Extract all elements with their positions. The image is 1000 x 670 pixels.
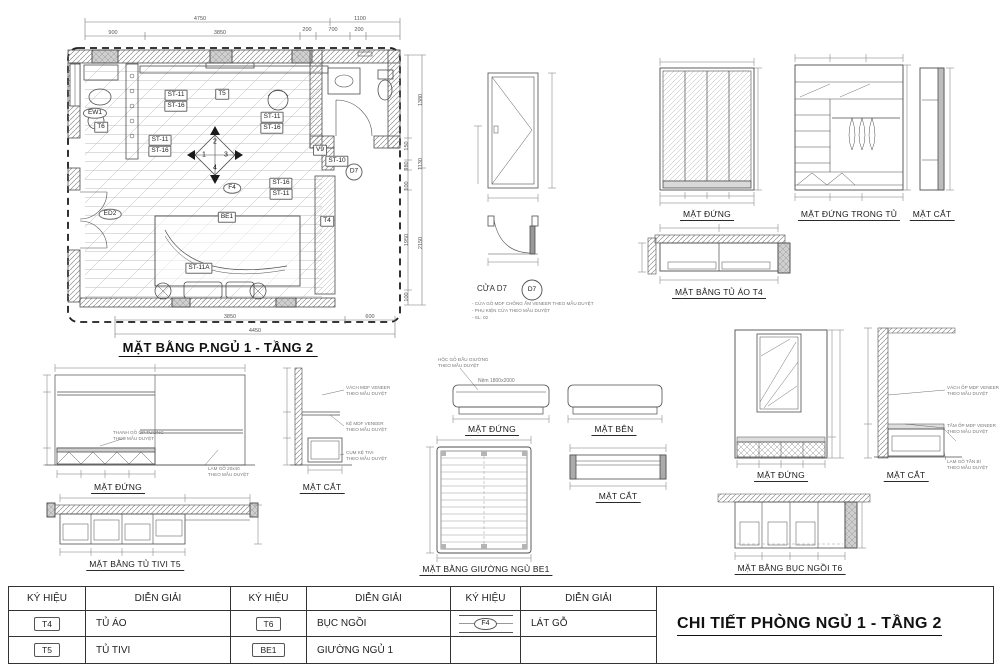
legend-desc-be1: GIƯỜNG NGỦ 1 (307, 637, 451, 663)
legend-desc-f4: LÁT GỖ (521, 611, 657, 637)
bench-sec-note-3: LAM GỖ TẦN BÌ THEO MẪU DUYỆT (947, 459, 988, 471)
dim-100a: 100 (404, 181, 410, 190)
legend-sym-t6: T6 (231, 611, 307, 637)
wardrobe-inside-title: MẶT ĐỨNG TRONG TỦ (798, 209, 900, 221)
symbol-be1: BE1 (252, 643, 284, 657)
plan-title: MẶT BẰNG P.NGỦ 1 - TẦNG 2 (119, 340, 318, 357)
compass-1: 1 (202, 152, 206, 159)
bench-sec-note-2a: TẤM ỐP MDF VENEER (947, 423, 996, 428)
bed-front-title: MẶT ĐỨNG (465, 424, 519, 436)
tag-st16-left: ST-16 (148, 146, 171, 157)
dim-1130: 1130 (418, 158, 424, 170)
tag-d7-plan: D7 (346, 164, 363, 181)
symbol-t4: T4 (34, 617, 60, 631)
dim-200b: 200 (354, 27, 363, 33)
tag-st11a: ST-11A (185, 263, 212, 274)
wardrobe-front-title: MẶT ĐỨNG (680, 209, 734, 221)
dim-600: 600 (365, 314, 374, 320)
legend-desc-t4: TỦ ÁO (86, 611, 231, 637)
legend-sym-f4: F4 (451, 611, 521, 637)
bench-sec-note-2b: THEO MẪU DUYỆT (947, 429, 988, 434)
legend-desc-t5: TỦ TIVI (86, 637, 231, 663)
tv-sec-note-3a: CỤM KỆ TIVI (346, 450, 373, 455)
sheet-title: CHI TIẾT PHÒNG NGỦ 1 - TẦNG 2 (677, 615, 942, 636)
tag-st11-top: ST-11 (165, 90, 188, 101)
bench-plan-title: MẶT BẰNG BỤC NGỒI T6 (735, 563, 846, 575)
door-note-3: - SL: 02 (472, 315, 488, 321)
tv-sec-note-3b: THEO MẪU DUYỆT (346, 456, 387, 461)
compass-2: 2 (213, 139, 217, 146)
tag-ew1: EW1 (83, 108, 107, 119)
tv-note-wall-1: THANH GỖ ỐP TƯỜNG (113, 430, 164, 435)
dim-980: 980 (404, 161, 410, 170)
bench-sec-note-1: VÁCH ỐP MDF VENEER THEO MẪU DUYỆT (947, 385, 999, 397)
legend-desc-t6: BỤC NGỒI (307, 611, 451, 637)
floor-plan-drawing (68, 18, 426, 338)
tv-note-wall: THANH GỖ ỐP TƯỜNG THEO MẪU DUYỆT (113, 430, 164, 442)
door-detail-drawing (474, 73, 556, 300)
tag-v9: V9 (313, 145, 327, 156)
tag-f4: F4 (223, 183, 241, 194)
bed-side-title: MẶT BÊN (591, 424, 636, 436)
wardrobe-section-title: MẶT CẮT (910, 209, 955, 221)
bench-sec-note-3b: THEO MẪU DUYỆT (947, 465, 988, 470)
dim-1950: 1950 (404, 234, 410, 246)
tv-plan-title: MẶT BẰNG TỦ TIVI T5 (86, 559, 184, 571)
tag-t4-plan: T4 (320, 216, 334, 227)
tag-st11-left: ST-11 (149, 135, 172, 146)
tag-be1: BE1 (218, 212, 236, 223)
wardrobe-drawings (638, 54, 954, 284)
tv-note-lam: LAM GỖ 20x40 THEO MẪU DUYỆT (208, 466, 249, 478)
legend-header-sym-1: KÝ HIỆU (9, 587, 86, 611)
tv-sec-note-2a: KỆ MDF VENEER (346, 421, 384, 426)
dim-4450: 4450 (249, 328, 261, 334)
tv-unit-drawings (43, 364, 352, 556)
tag-st16-top: ST-16 (164, 101, 187, 112)
tag-st16-mid: ST-16 (269, 178, 292, 189)
bench-sec-note-3a: LAM GỖ TẦN BÌ (947, 459, 981, 464)
legend-header-desc-1: DIỄN GIẢI (86, 587, 231, 611)
dim-2150: 2150 (418, 237, 424, 249)
tv-note-lam-2: THEO MẪU DUYỆT (208, 472, 249, 477)
tv-sec-note-3: CỤM KỆ TIVI THEO MẪU DUYỆT (346, 450, 387, 462)
legend-table: KÝ HIỆU DIỄN GIẢI KÝ HIỆU DIỄN GIẢI KÝ H… (8, 586, 994, 664)
bench-sec-note-1b: THEO MẪU DUYỆT (947, 391, 988, 396)
bench-sec-note-1a: VÁCH ỐP MDF VENEER (947, 385, 999, 390)
legend-sym-empty (451, 637, 521, 663)
dim-100b: 100 (404, 292, 410, 301)
floor-finish-symbol: F4 (459, 615, 513, 633)
tv-note-lam-1: LAM GỖ 20x40 (208, 466, 240, 471)
symbol-t5: T5 (34, 643, 60, 657)
bench-drawings (718, 328, 962, 560)
tv-section-title: MẶT CẮT (300, 482, 345, 494)
tv-sec-note-1: VÁCH MDF VENEER THEO MẪU DUYỆT (346, 385, 390, 397)
legend-header-sym-3: KÝ HIỆU (451, 587, 521, 611)
bench-front-title: MẶT ĐỨNG (754, 470, 808, 482)
door-label: CỬA D7 (477, 284, 507, 293)
legend-header-desc-2: DIỄN GIẢI (307, 587, 451, 611)
tag-st11-mid: ST-11 (270, 189, 293, 200)
dim-1100: 1100 (354, 16, 366, 22)
door-note-1: - CỬA GỖ MDF CHỐNG ẨM VENEER THEO MẪU DU… (472, 301, 594, 307)
drawing-sheet: 4750 1100 900 3850 200 700 200 3850 600 … (0, 0, 1000, 670)
tv-sec-note-1b: THEO MẪU DUYỆT (346, 391, 387, 396)
legend-sym-t4: T4 (9, 611, 86, 637)
bench-section-title: MẶT CẮT (884, 470, 929, 482)
bed-note-2: THEO MẪU DUYỆT (438, 363, 479, 368)
door-bubble: D7 (528, 287, 536, 294)
bed-mattress-note: Nệm 1800x2000 (478, 378, 515, 385)
symbol-f4: F4 (474, 618, 496, 630)
tag-st16-right: ST-16 (260, 123, 283, 134)
compass-3: 3 (224, 152, 228, 159)
tv-sec-note-2: KỆ MDF VENEER THEO MẪU DUYỆT (346, 421, 387, 433)
dim-700: 700 (328, 27, 337, 33)
dim-150: 150 (404, 141, 410, 150)
symbol-t6: T6 (256, 617, 282, 631)
bench-sec-note-2: TẤM ỐP MDF VENEER THEO MẪU DUYỆT (947, 423, 996, 435)
tag-ed2: ED2 (99, 209, 122, 220)
compass-4: 4 (213, 165, 217, 172)
dim-3850b: 3850 (224, 314, 236, 320)
door-note-2: - PHỤ KIỆN CỬA THEO MẪU DUYỆT (472, 308, 550, 314)
tv-sec-note-1a: VÁCH MDF VENEER (346, 385, 390, 390)
tv-sec-note-2b: THEO MẪU DUYỆT (346, 427, 387, 432)
tag-t6-plan: T6 (94, 122, 108, 133)
dim-1380: 1380 (418, 94, 424, 106)
dim-900: 900 (108, 30, 117, 36)
wardrobe-plan-title: MẶT BẰNG TỦ ÁO T4 (672, 287, 766, 299)
dim-4750: 4750 (194, 16, 206, 22)
tag-st11-right: ST-11 (261, 112, 284, 123)
tag-t5-plan: T5 (215, 89, 229, 100)
legend-sym-t5: T5 (9, 637, 86, 663)
bed-plan-title: MẶT BẰNG GIƯỜNG NGỦ BE1 (419, 564, 552, 576)
tv-note-wall-2: THEO MẪU DUYỆT (113, 436, 154, 441)
tv-front-title: MẶT ĐỨNG (91, 482, 145, 494)
dim-200a: 200 (302, 27, 311, 33)
legend-header-desc-3: DIỄN GIẢI (521, 587, 657, 611)
tag-st10: ST-10 (325, 156, 348, 167)
legend-header-sym-2: KÝ HIỆU (231, 587, 307, 611)
bed-section-title: MẶT CẮT (596, 491, 641, 503)
legend-desc-empty (521, 637, 657, 663)
sheet-title-block: CHI TIẾT PHÒNG NGỦ 1 - TẦNG 2 (657, 587, 993, 663)
bed-note: HỘC GỖ ĐẦU GIƯỜNG THEO MẪU DUYỆT (438, 357, 488, 369)
dim-3850t: 3850 (214, 30, 226, 36)
bed-drawings (426, 368, 666, 562)
legend-sym-be1: BE1 (231, 637, 307, 663)
bed-note-1: HỘC GỖ ĐẦU GIƯỜNG (438, 357, 488, 362)
